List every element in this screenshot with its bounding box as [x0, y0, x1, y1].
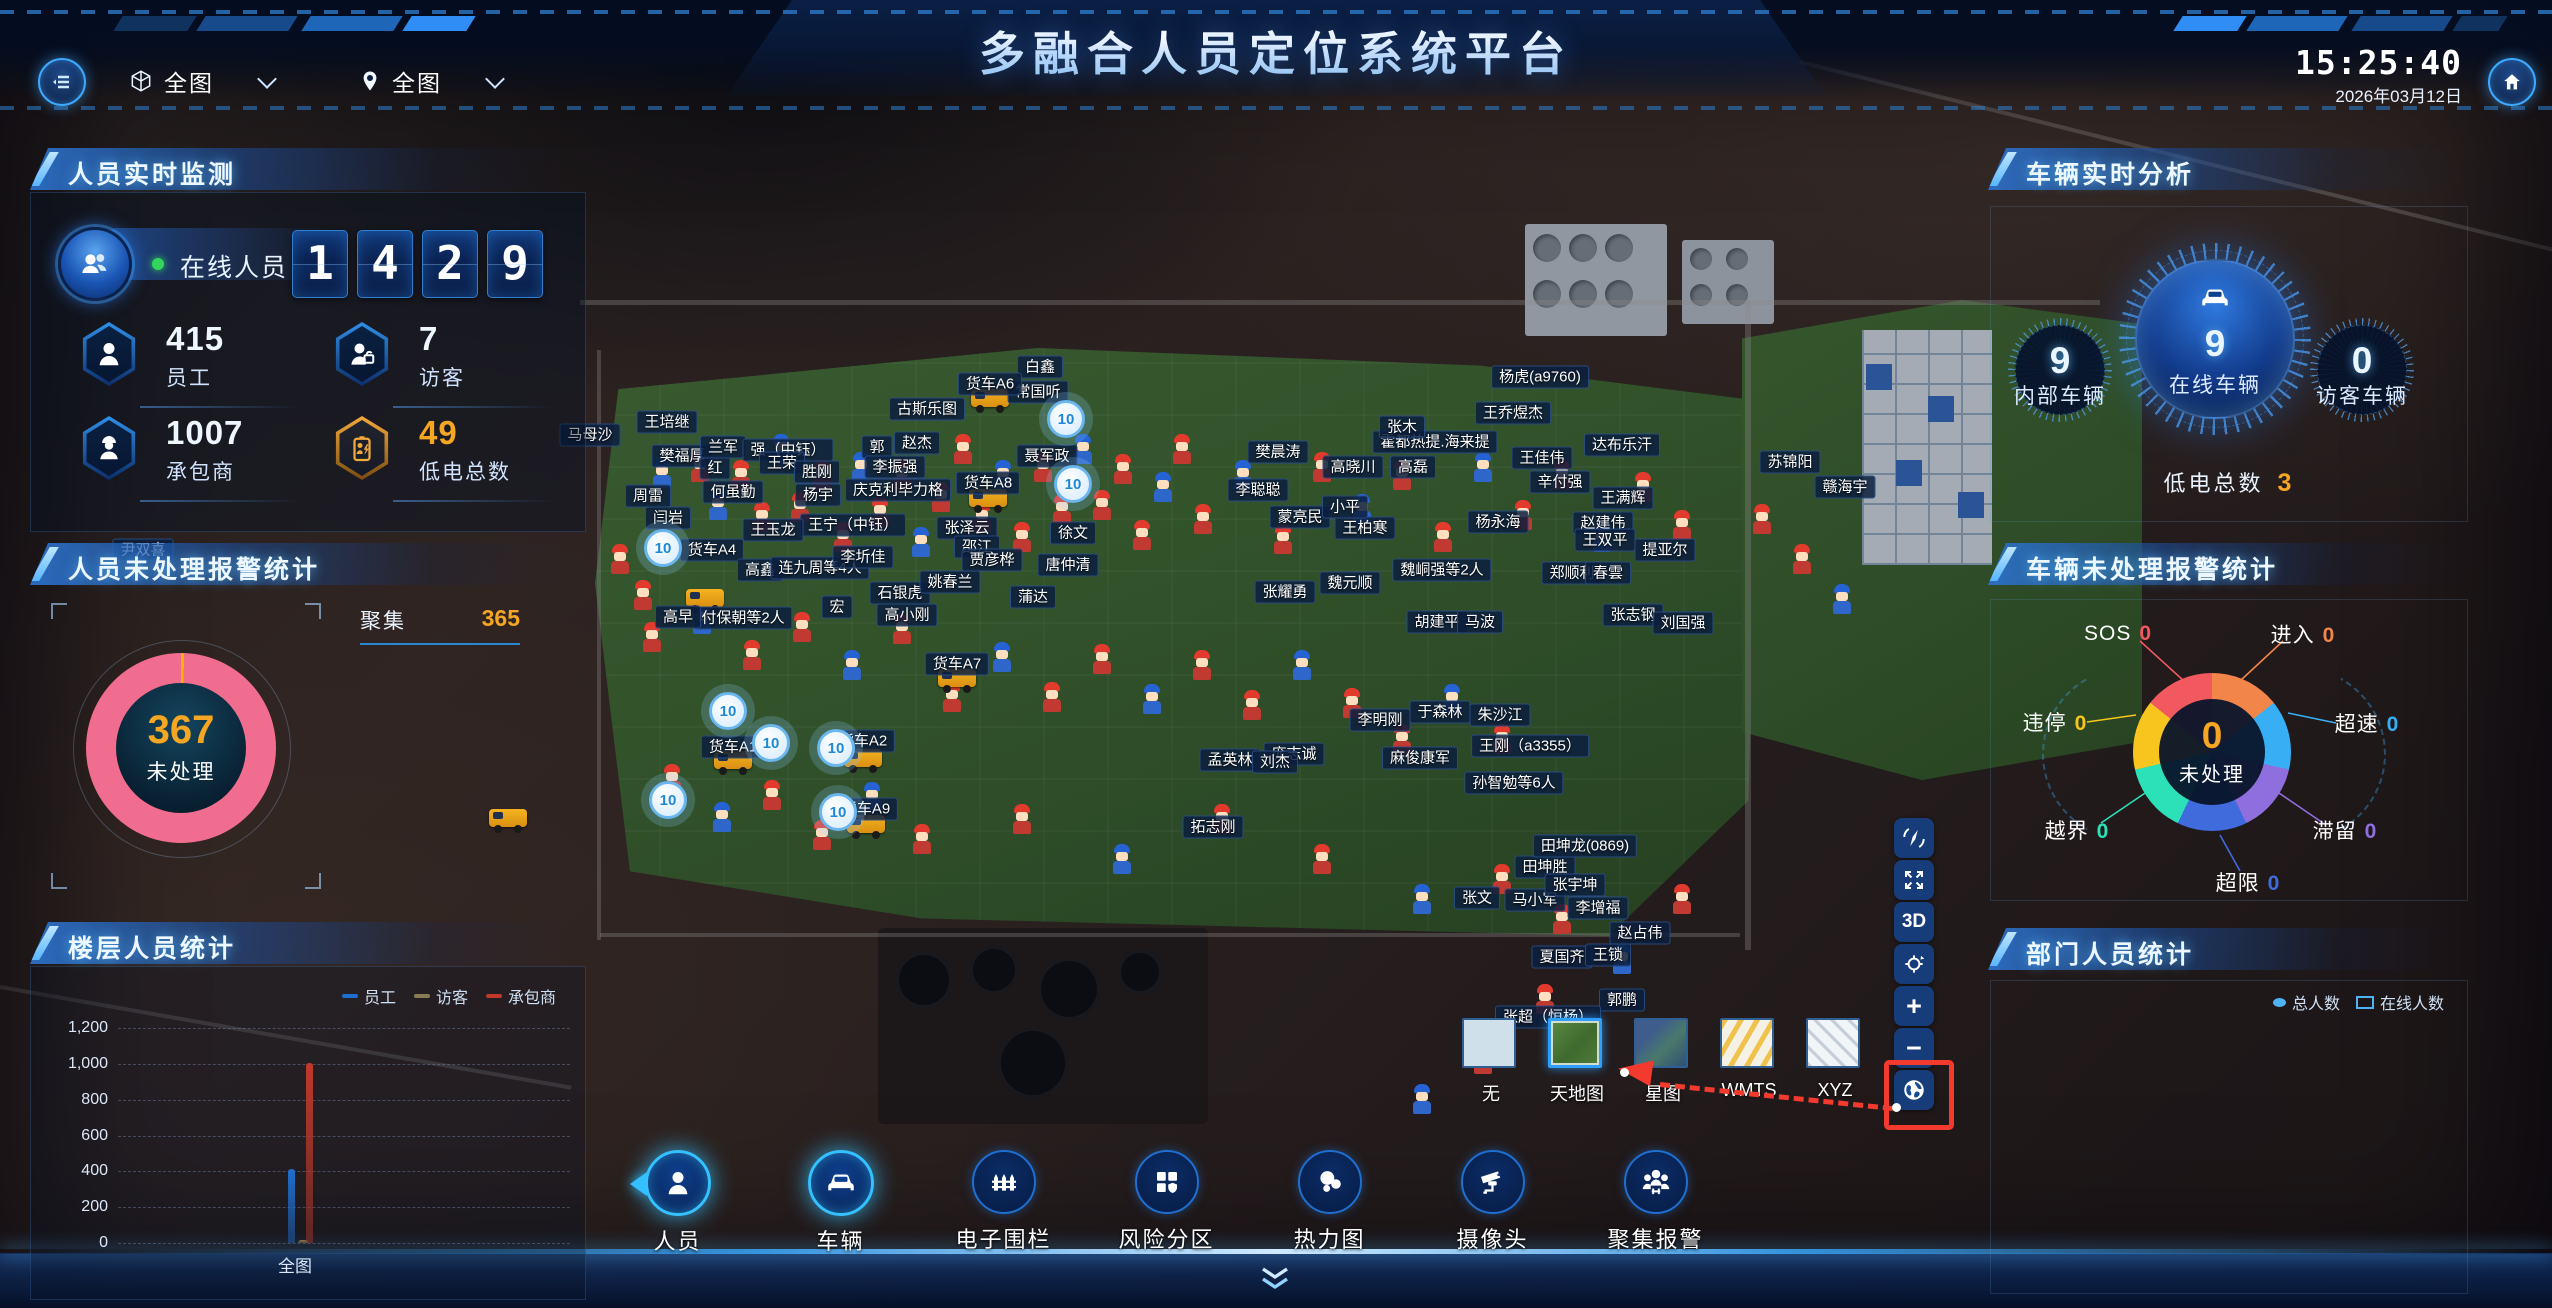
- panel-frame: [1990, 980, 2468, 1294]
- worker-marker-blue[interactable]: [1412, 1084, 1432, 1114]
- panel-vehicle-alarms: 车辆未处理报警统计 0 未处理 进入0超速0滞留0超限0越界0违停0SOS0: [1988, 543, 2470, 907]
- alarm-type-value: 365: [482, 605, 520, 632]
- stat-divider: [140, 500, 300, 502]
- alarm-slice-label-进入: 进入0: [2271, 619, 2336, 649]
- map-person-label[interactable]: 李圻佳: [832, 546, 893, 569]
- slice-value: 0: [2323, 624, 2336, 647]
- worker-marker-red[interactable]: [1012, 804, 1032, 834]
- panel-personnel-alarms: 人员未处理报警统计 367 未处理 聚集 365: [30, 543, 586, 907]
- map-person-label[interactable]: 郭鹏: [1599, 989, 1645, 1012]
- panel-vehicle-analysis: 车辆实时分析 9内部车辆9在线车辆0访客车辆 低电总数3: [1988, 148, 2470, 532]
- map-person-label[interactable]: 贾彦桦: [961, 549, 1022, 572]
- panel-title: 部门人员统计: [2026, 935, 2194, 971]
- chevron-down-icon: [485, 69, 505, 89]
- map-person-label[interactable]: 宏: [821, 596, 852, 619]
- bar-员工: [288, 1169, 295, 1243]
- panel-title: 楼层人员统计: [68, 929, 236, 965]
- alarm-slice-label-SOS: SOS0: [2084, 622, 2152, 646]
- map-person-label[interactable]: 货车A8: [956, 472, 1020, 495]
- map-person-label[interactable]: 杨永海: [1467, 511, 1528, 534]
- map-person-label[interactable]: 杨虎(a9760): [1491, 366, 1589, 389]
- alarm-total-value: 367: [148, 710, 215, 750]
- gauge-label: 访客车辆: [2310, 380, 2414, 410]
- legend-swatch: [486, 994, 502, 998]
- slice-name: 进入: [2271, 624, 2315, 647]
- worker-marker-red[interactable]: [1312, 844, 1332, 874]
- contractor-icon: [84, 420, 134, 476]
- panel-title: 车辆未处理报警统计: [2026, 550, 2278, 586]
- person-icon: [645, 1150, 711, 1216]
- stat-divider: [393, 406, 553, 408]
- map-person-label[interactable]: 唐仲清: [1037, 554, 1098, 577]
- panel-department-stats: 部门人员统计 总人数在线人数: [1988, 928, 2470, 1300]
- annotation-highlight-box: [1884, 1060, 1954, 1130]
- map-person-label[interactable]: 货车A4: [680, 539, 744, 562]
- map-person-label[interactable]: 苏锦阳: [1759, 451, 1820, 474]
- slice-name: SOS: [2084, 622, 2131, 645]
- personnel-stat-员工: 415员工: [56, 316, 309, 410]
- worker-marker-red[interactable]: [1433, 522, 1453, 552]
- area-select-value: 全图: [392, 64, 442, 98]
- time-text: 15:25:40: [2295, 46, 2462, 79]
- layer-option-无[interactable]: 无: [1462, 1018, 1520, 1106]
- menu-icon: [50, 70, 74, 94]
- map-person-label[interactable]: 小平: [1322, 496, 1368, 519]
- worker-marker-blue[interactable]: [1112, 844, 1132, 874]
- toolbar-label: 热力图: [1272, 1222, 1387, 1254]
- worker-marker-blue[interactable]: [842, 650, 862, 680]
- legend-label: 在线人数: [2380, 990, 2444, 1014]
- toolbar-聚集报警[interactable]: 聚集报警: [1598, 1150, 1713, 1256]
- slice-value: 0: [2365, 820, 2378, 843]
- map-person-label[interactable]: 胜刚: [794, 461, 840, 484]
- legend-label: 员工: [364, 984, 396, 1008]
- grid-line: [118, 1136, 570, 1137]
- map-control-zoom-in[interactable]: +: [1894, 986, 1934, 1026]
- cluster-badge[interactable]: 10: [752, 724, 790, 762]
- stat-label: 承包商: [166, 456, 235, 486]
- worker-marker-red[interactable]: [1092, 490, 1112, 520]
- map-person-label[interactable]: 赣海宇: [1814, 476, 1875, 499]
- map-person-label[interactable]: 王佳伟: [1511, 447, 1572, 470]
- map-person-label[interactable]: 王双平: [1574, 529, 1635, 552]
- alarm-total-label: 未处理: [147, 756, 216, 786]
- map-person-label[interactable]: 王乔煜杰: [1475, 402, 1551, 425]
- total-dot-icon: [2273, 998, 2286, 1007]
- fence-icon: [972, 1150, 1036, 1214]
- map-person-label[interactable]: 兰军: [700, 436, 746, 459]
- worker-marker-blue[interactable]: [1412, 884, 1432, 914]
- toolbar-热力图[interactable]: 热力图: [1272, 1150, 1387, 1256]
- alarm-slice-label-越界: 越界0: [2045, 815, 2110, 845]
- worker-marker-red[interactable]: [1672, 510, 1692, 540]
- map-person-label[interactable]: 魏峒强等2人: [1392, 559, 1491, 582]
- map-person-label[interactable]: 刘杰: [1252, 751, 1298, 774]
- worker-marker-blue[interactable]: [1142, 684, 1162, 714]
- layer-selector: 无天地图星图WMTSXYZ: [1462, 1018, 1864, 1106]
- bottom-collapse-chevron[interactable]: [1258, 1266, 1292, 1292]
- map-person-label[interactable]: 古斯乐图: [889, 398, 965, 421]
- map-person-label[interactable]: 红: [699, 457, 730, 480]
- map-person-label[interactable]: 付保朝等2人: [693, 607, 792, 630]
- map-person-label[interactable]: 刘国强: [1652, 612, 1713, 635]
- toolbar-电子围栏[interactable]: 电子围栏: [946, 1150, 1061, 1256]
- worker-marker-red[interactable]: [1113, 454, 1133, 484]
- map-person-label[interactable]: 田坤龙(0869): [1533, 835, 1637, 858]
- y-tick-label: 200: [38, 1198, 108, 1216]
- cluster-badge[interactable]: 10: [649, 781, 687, 819]
- worker-marker-red[interactable]: [1092, 644, 1112, 674]
- map-person-label[interactable]: 春雲: [1585, 562, 1631, 585]
- worker-marker-red[interactable]: [1752, 504, 1772, 534]
- bottom-toolbar: 人员车辆电子围栏风险分区热力图摄像头聚集报警: [620, 1150, 1713, 1256]
- cluster-badge[interactable]: 10: [709, 692, 747, 730]
- map-person-label[interactable]: 杨宇: [795, 484, 841, 507]
- stat-value: 1007: [166, 414, 243, 452]
- map-person-label[interactable]: 张木: [1379, 416, 1425, 439]
- worker-marker-red[interactable]: [742, 640, 762, 670]
- map-person-label[interactable]: 王宁（中钰）: [800, 514, 906, 537]
- toolbar-label: 人员: [620, 1224, 735, 1256]
- grid-line: [118, 1064, 570, 1065]
- menu-button[interactable]: [38, 58, 86, 106]
- legend-item-总人数[interactable]: 总人数: [2273, 990, 2340, 1014]
- header-dashed-line: [0, 106, 2552, 110]
- map-person-label[interactable]: 姚春兰: [919, 571, 980, 594]
- map-person-label[interactable]: 拓志刚: [1182, 816, 1243, 839]
- stat-value: 415: [166, 320, 224, 358]
- map-person-label[interactable]: 王锁: [1585, 944, 1631, 967]
- online-label: 在线人员: [180, 248, 288, 284]
- personnel-stat-低电总数: 49低电总数: [309, 410, 562, 504]
- legend-item-在线人数[interactable]: 在线人数: [2356, 990, 2444, 1014]
- map-person-label[interactable]: 蒲达: [1010, 586, 1056, 609]
- toolbar-label: 摄像头: [1435, 1222, 1550, 1254]
- map-person-label[interactable]: 徐文: [1050, 522, 1096, 545]
- online-digit-card: 1: [292, 230, 348, 298]
- map-control-compass[interactable]: [1894, 818, 1934, 858]
- map-person-label[interactable]: 孙智勉等6人: [1464, 772, 1563, 795]
- map-person-label[interactable]: 高晓川: [1322, 456, 1383, 479]
- slice-name: 超限: [2216, 872, 2260, 895]
- stat-value: 7: [419, 320, 438, 358]
- gauge-label: 内部车辆: [2008, 380, 2112, 410]
- toolbar-label: 车辆: [783, 1224, 898, 1256]
- worker-marker-red[interactable]: [792, 612, 812, 642]
- gauge-value: 9: [2135, 323, 2295, 365]
- worker-marker-red[interactable]: [633, 580, 653, 610]
- home-button[interactable]: [2488, 58, 2536, 106]
- vehicle-alarm-donut: 0 未处理: [2133, 673, 2291, 831]
- worker-marker-red[interactable]: [762, 780, 782, 810]
- layer-thumbnail: [1548, 1018, 1602, 1068]
- chevron-down-icon: [257, 69, 277, 89]
- panel-floor-stats: 楼层人员统计 员工访客承包商 1,2001,0008006004002000全图: [30, 922, 586, 1300]
- car-icon: [2198, 281, 2232, 315]
- online-digit-card: 4: [357, 230, 413, 298]
- worker-marker-red[interactable]: [1792, 544, 1812, 574]
- grid-line: [118, 1171, 570, 1172]
- gauge-内部车辆: 9内部车辆: [2008, 318, 2112, 422]
- map-person-label[interactable]: 于森林: [1409, 701, 1470, 724]
- map-person-label[interactable]: 白鑫: [1017, 356, 1063, 379]
- clock: 15:25:40 2026年03月12日: [2295, 46, 2462, 107]
- personnel-stat-访客: 7访客: [309, 316, 562, 410]
- legend-swatch: [414, 994, 430, 998]
- y-tick-label: 600: [38, 1127, 108, 1145]
- stat-divider: [140, 406, 300, 408]
- stat-label: 低电总数: [419, 456, 511, 486]
- layer-label: 天地图: [1548, 1080, 1606, 1106]
- dashboard-root: 马母沙王培继樊福厚红兰军强（中钰）王荣胜刚何虽勤杨宇庆克利毕力格古斯乐图赵杰郭李…: [0, 0, 2552, 1308]
- crowd-icon: [1624, 1150, 1688, 1214]
- layer-thumbnail: [1720, 1018, 1774, 1068]
- map-person-label[interactable]: 提亚尔: [1634, 539, 1695, 562]
- cluster-badge[interactable]: 10: [817, 729, 855, 767]
- map-person-label[interactable]: 李增福: [1567, 897, 1628, 920]
- worker-marker-red[interactable]: [953, 434, 973, 464]
- vehicle-low-battery: 低电总数3: [1988, 466, 2470, 498]
- map-person-label[interactable]: 王满辉: [1592, 487, 1653, 510]
- car-icon: [808, 1150, 874, 1216]
- stat-label: 访客: [419, 362, 465, 392]
- toolbar-风险分区[interactable]: 风险分区: [1109, 1150, 1224, 1256]
- map-person-label[interactable]: 夏国齐: [1531, 946, 1592, 969]
- legend-label: 承包商: [508, 984, 556, 1008]
- alarm-legend-row[interactable]: 聚集 365: [360, 605, 520, 645]
- y-tick-label: 0: [38, 1234, 108, 1252]
- grid-line: [118, 1207, 570, 1208]
- cluster-badge[interactable]: 10: [1047, 400, 1085, 438]
- map-person-label[interactable]: 高早: [655, 606, 701, 629]
- map-person-label[interactable]: 高磊: [1390, 456, 1436, 479]
- person-icon: [84, 326, 134, 382]
- panel-personnel-monitor: 人员实时监测 在线人员 1429 415员工7访客1007承包商49低电总数: [30, 148, 586, 532]
- map-person-label[interactable]: 李振强: [864, 456, 925, 479]
- map-person-label[interactable]: 赵杰: [894, 432, 940, 455]
- map-person-label[interactable]: 货车A6: [958, 373, 1022, 396]
- worker-marker-red[interactable]: [1672, 884, 1692, 914]
- alarm-type-label: 聚集: [360, 605, 406, 635]
- personnel-stats: 415员工7访客1007承包商49低电总数: [56, 316, 562, 504]
- map-scope-select[interactable]: 全图: [128, 62, 274, 100]
- online-digit-card: 2: [422, 230, 478, 298]
- map-person-label[interactable]: 张耀勇: [1254, 581, 1315, 604]
- worker-marker-blue[interactable]: [1292, 650, 1312, 680]
- panel-title: 人员未处理报警统计: [68, 550, 320, 586]
- slice-value: 0: [2097, 820, 2110, 843]
- toolbar-label: 风险分区: [1109, 1222, 1224, 1254]
- gauge-value: 0: [2310, 340, 2414, 382]
- map-person-label[interactable]: 何虽勤: [702, 481, 763, 504]
- map-person-label[interactable]: 李聪聪: [1227, 479, 1288, 502]
- zone-icon: [1135, 1150, 1199, 1214]
- vehicle-alarm-total: 0: [2202, 717, 2223, 754]
- worker-marker-red[interactable]: [1192, 650, 1212, 680]
- panel-title: 车辆实时分析: [2026, 155, 2194, 191]
- battery-hex-icon: [333, 416, 391, 480]
- visitor-hex-icon: [333, 322, 391, 386]
- map-person-label[interactable]: 达布乐汗: [1584, 434, 1660, 457]
- home-icon: [2501, 71, 2523, 93]
- department-legend[interactable]: 总人数在线人数: [2273, 990, 2444, 1014]
- visitor-icon: [337, 326, 387, 382]
- worker-marker-red[interactable]: [1012, 522, 1032, 552]
- map-person-label[interactable]: 聂军政: [1016, 445, 1077, 468]
- person-hex-icon: [80, 322, 138, 386]
- stat-value: 49: [419, 414, 458, 452]
- slice-value: 0: [2075, 712, 2088, 735]
- worker-marker-blue[interactable]: [712, 802, 732, 832]
- legend-item-承包商[interactable]: 承包商: [486, 984, 556, 1008]
- legend-swatch: [342, 994, 358, 998]
- map-control-locate[interactable]: [1894, 944, 1934, 984]
- layer-option-天地图[interactable]: 天地图: [1548, 1018, 1606, 1106]
- battery-icon: [337, 420, 387, 476]
- alarm-slice-label-超速: 超速0: [2335, 708, 2400, 738]
- worker-marker-red[interactable]: [912, 824, 932, 854]
- map-person-label[interactable]: 闫岩: [645, 507, 691, 530]
- worker-marker-red[interactable]: [610, 544, 630, 574]
- layer-label: 无: [1462, 1080, 1520, 1106]
- toolbar-车辆[interactable]: 车辆: [783, 1150, 898, 1256]
- legend-label: 总人数: [2292, 990, 2340, 1014]
- map-person-label[interactable]: 货车A7: [925, 653, 989, 676]
- toolbar-label: 聚集报警: [1598, 1222, 1713, 1254]
- area-select[interactable]: 全图: [358, 62, 502, 100]
- slice-name: 违停: [2023, 712, 2067, 735]
- map-person-label[interactable]: 麻俊康军: [1382, 747, 1458, 770]
- map-control-fullscreen[interactable]: [1894, 860, 1934, 900]
- slice-value: 0: [2268, 872, 2281, 895]
- alarm-slice-label-滞留: 滞留0: [2313, 815, 2378, 845]
- online-rect-icon: [2356, 996, 2374, 1009]
- worker-marker-blue[interactable]: [1473, 452, 1493, 482]
- worker-marker-blue[interactable]: [911, 527, 931, 557]
- map-person-label[interactable]: 王玉龙: [742, 519, 803, 542]
- gauge-访客车辆: 0访客车辆: [2310, 318, 2414, 422]
- slice-name: 越界: [2045, 820, 2089, 843]
- slice-value: 0: [2139, 622, 2152, 645]
- date-text: 2026年03月12日: [2295, 82, 2462, 107]
- pin-icon: [358, 69, 382, 93]
- online-status-dot: [152, 258, 164, 270]
- cluster-badge[interactable]: 10: [644, 529, 682, 567]
- stat-divider: [393, 500, 553, 502]
- slice-name: 超速: [2335, 713, 2379, 736]
- floor-chart-legend[interactable]: 员工访客承包商: [342, 984, 556, 1008]
- worker-marker-red[interactable]: [1132, 520, 1152, 550]
- map-person-label[interactable]: 魏元顺: [1319, 572, 1380, 595]
- gauge-label: 在线车辆: [2135, 369, 2295, 399]
- y-tick-label: 1,200: [38, 1019, 108, 1037]
- legend-item-访客[interactable]: 访客: [414, 984, 468, 1008]
- legend-underline: [360, 643, 520, 645]
- legend-label: 访客: [436, 984, 468, 1008]
- gauge-value: 9: [2008, 340, 2112, 382]
- top-dashed-line: [0, 10, 2552, 14]
- gauge-在线车辆: 9在线车辆: [2135, 259, 2295, 419]
- grid-line: [118, 1100, 570, 1101]
- map-person-label[interactable]: 朱沙江: [1469, 704, 1530, 727]
- annotation-dot: [1892, 1103, 1901, 1112]
- map-person-label[interactable]: 高小刚: [876, 604, 937, 627]
- layer-thumbnail: [1806, 1018, 1860, 1068]
- grid-line: [118, 1028, 570, 1029]
- alarm-slice-label-超限: 超限0: [2216, 867, 2281, 897]
- heat-icon: [1298, 1150, 1362, 1214]
- layer-thumbnail: [1462, 1018, 1516, 1068]
- toolbar-摄像头[interactable]: 摄像头: [1435, 1150, 1550, 1256]
- worker-marker-blue[interactable]: [1153, 472, 1173, 502]
- cube-icon: [128, 68, 154, 94]
- online-digit-card: 9: [487, 230, 543, 298]
- map-person-label[interactable]: 王培继: [636, 411, 697, 434]
- slice-value: 0: [2387, 713, 2400, 736]
- map-person-label[interactable]: 樊晨涛: [1247, 441, 1308, 464]
- grid-line: [118, 1243, 570, 1244]
- cluster-badge[interactable]: 10: [1054, 465, 1092, 503]
- map-person-label[interactable]: 王柏寒: [1334, 517, 1395, 540]
- x-category-label: 全图: [278, 1252, 312, 1277]
- online-people-icon: [58, 227, 132, 301]
- toolbar-label: 电子围栏: [946, 1222, 1061, 1254]
- y-tick-label: 800: [38, 1091, 108, 1109]
- cluster-badge[interactable]: 10: [819, 793, 857, 831]
- toolbar-人员[interactable]: 人员: [620, 1150, 735, 1256]
- map-person-label[interactable]: 周雷: [625, 485, 671, 508]
- map-person-label[interactable]: 马波: [1457, 611, 1503, 634]
- map-person-label[interactable]: 辛付强: [1529, 471, 1590, 494]
- annotation-dot: [1620, 1068, 1629, 1077]
- map-person-label[interactable]: 王刚（a3355）: [1471, 735, 1589, 758]
- slice-name: 滞留: [2313, 820, 2357, 843]
- layer-option-XYZ[interactable]: XYZ: [1806, 1018, 1864, 1106]
- worker-marker-red[interactable]: [1193, 504, 1213, 534]
- personnel-stat-承包商: 1007承包商: [56, 410, 309, 504]
- y-tick-label: 1,000: [38, 1055, 108, 1073]
- worker-marker-blue[interactable]: [992, 642, 1012, 672]
- legend-item-员工[interactable]: 员工: [342, 984, 396, 1008]
- map-person-label[interactable]: 赵占伟: [1609, 922, 1670, 945]
- alarm-slice-label-违停: 违停0: [2023, 707, 2088, 737]
- map-person-label[interactable]: 张文: [1454, 887, 1500, 910]
- worker-marker-blue[interactable]: [1832, 584, 1852, 614]
- panel-title: 人员实时监测: [68, 155, 236, 191]
- bar-承包商: [306, 1063, 313, 1243]
- map-person-label[interactable]: 张宇坤: [1544, 874, 1605, 897]
- personnel-alarm-donut: 367 未处理: [86, 653, 276, 843]
- worker-marker-red[interactable]: [1042, 682, 1062, 712]
- vehicle-alarm-label: 未处理: [2179, 758, 2245, 787]
- worker-marker-red[interactable]: [1242, 690, 1262, 720]
- map-person-label[interactable]: 李明刚: [1349, 709, 1410, 732]
- map-scope-value: 全图: [164, 64, 214, 98]
- map-person-label[interactable]: 庆克利毕力格: [845, 479, 951, 502]
- stat-label: 员工: [166, 362, 212, 392]
- contractor-hex-icon: [80, 416, 138, 480]
- camera-icon: [1461, 1150, 1525, 1214]
- online-digit-cards: 1429: [292, 230, 543, 298]
- worker-marker-red[interactable]: [1172, 434, 1192, 464]
- map-control-threeD[interactable]: 3D: [1894, 902, 1934, 942]
- worker-marker-red[interactable]: [1273, 524, 1293, 554]
- y-tick-label: 400: [38, 1162, 108, 1180]
